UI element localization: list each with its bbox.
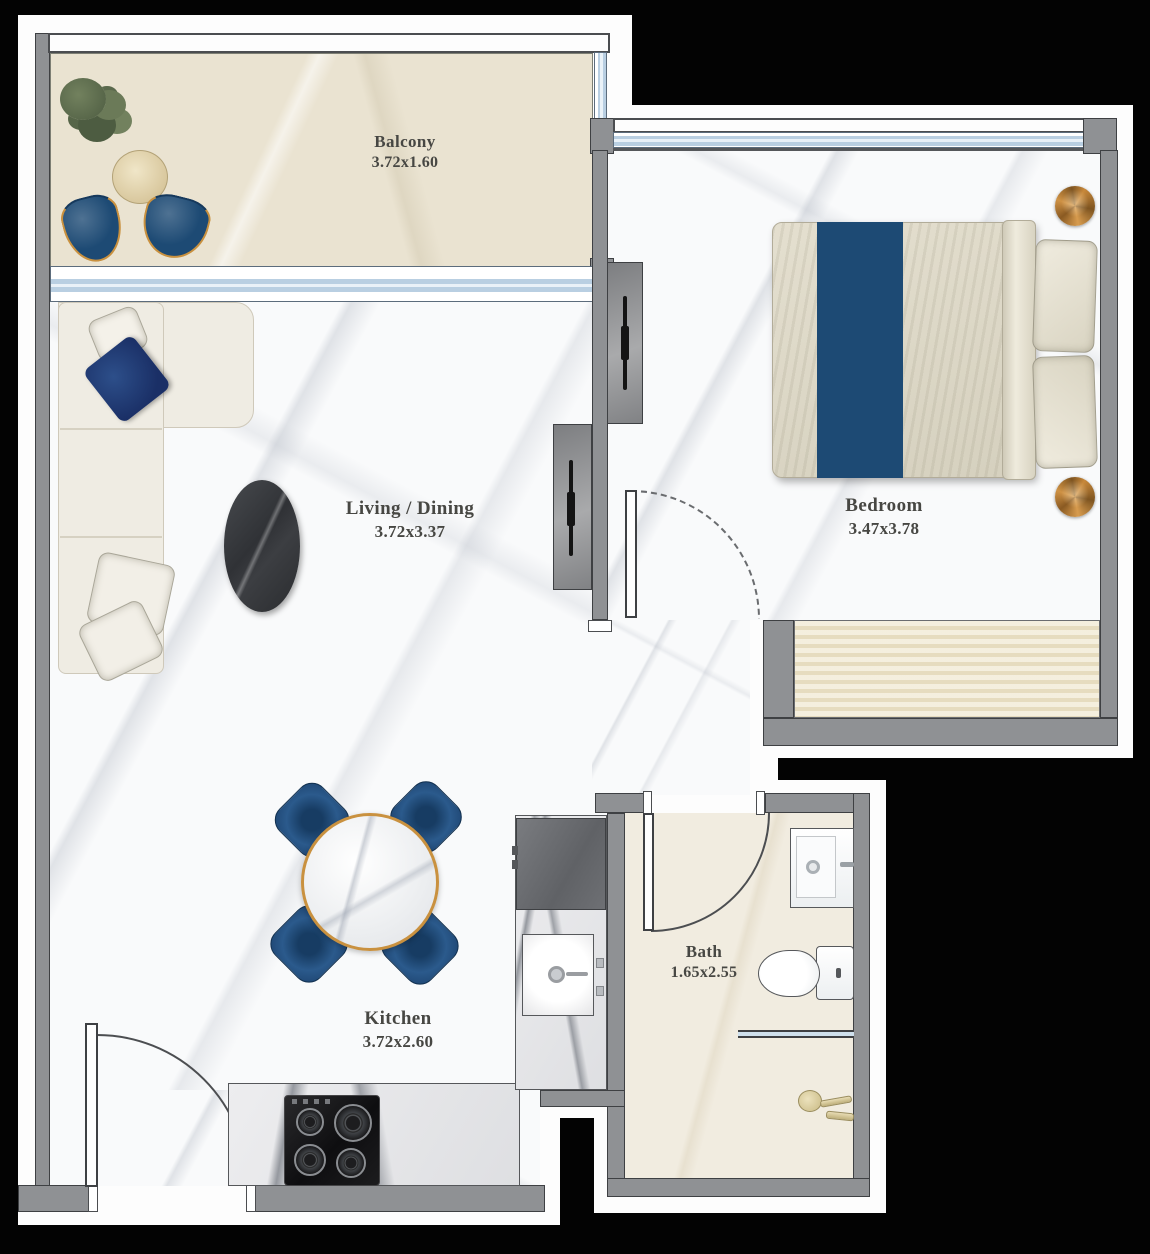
bed-runner	[817, 222, 903, 478]
room-dimensions: 1.65x2.55	[671, 963, 738, 983]
left-exterior-wall	[35, 33, 50, 1212]
bedroom-right-wall	[1100, 150, 1118, 718]
room-name: Bath	[671, 941, 738, 963]
burner	[296, 1108, 324, 1136]
bedroom-window-sill	[613, 148, 1085, 151]
fridge	[516, 818, 606, 910]
shower-divider	[738, 1030, 854, 1038]
wardrobe-unit	[794, 620, 1100, 718]
sliding-door-handle	[621, 326, 629, 360]
bath-top-wall-left	[595, 793, 645, 813]
bedroom-window	[613, 132, 1085, 148]
bed-pillow	[1032, 355, 1098, 469]
floor-plan: Balcony 3.72x1.60 Living / Dining 3.72x3…	[0, 0, 1150, 1254]
sofa-seam	[60, 536, 162, 538]
room-dimensions: 3.72x2.60	[363, 1031, 434, 1053]
door-jamb	[756, 791, 765, 815]
room-name: Living / Dining	[346, 497, 475, 521]
faucet-knob	[596, 958, 604, 968]
coffee-table	[224, 480, 300, 612]
toilet-button	[836, 968, 841, 978]
partition-wall	[592, 150, 608, 620]
sliding-door-handle	[567, 492, 575, 526]
toilet-bowl	[758, 950, 820, 997]
corridor-floor	[592, 620, 750, 795]
window-corner-post	[1083, 118, 1117, 154]
bath-label: Bath 1.65x2.55	[671, 941, 738, 983]
bath-door-leaf	[643, 813, 654, 931]
toilet-tank	[816, 946, 854, 1000]
bath-left-wall	[607, 813, 625, 1197]
room-name: Kitchen	[363, 1007, 434, 1031]
potted-plant	[60, 78, 106, 120]
sofa-seam	[60, 428, 162, 430]
bath-bottom-wall	[607, 1178, 870, 1197]
window-corner-post	[590, 118, 614, 154]
fridge-handle	[512, 846, 518, 855]
bed-pillow	[1032, 239, 1098, 353]
bed	[772, 222, 1034, 478]
faucet-knob	[596, 986, 604, 996]
door-jamb	[246, 1185, 256, 1212]
cooktop-knobs	[292, 1099, 336, 1104]
balcony-sliding-window	[50, 266, 594, 302]
burner	[294, 1144, 326, 1176]
entrance-door-leaf	[85, 1023, 98, 1187]
room-name: Bedroom	[845, 494, 922, 518]
bedside-table	[1055, 186, 1095, 226]
door-jamb	[643, 791, 652, 815]
bedroom-label: Bedroom 3.47x3.78	[845, 494, 922, 540]
room-dimensions: 3.47x3.78	[845, 518, 922, 540]
burner	[336, 1148, 366, 1178]
bed-sheet-fold	[1002, 220, 1036, 480]
bedroom-bottom-wall	[763, 718, 1118, 746]
bedroom-window-frame	[613, 118, 1085, 133]
bedroom-door-leaf	[625, 490, 637, 618]
burner	[334, 1104, 372, 1142]
bottom-wall-right	[248, 1185, 545, 1212]
bedside-table	[1055, 477, 1095, 517]
living-dining-label: Living / Dining 3.72x3.37	[346, 497, 475, 543]
room-dimensions: 3.72x1.60	[372, 153, 439, 173]
wardrobe-side-wall	[763, 620, 794, 718]
bath-faucet	[840, 862, 854, 867]
bath-right-wall	[853, 793, 870, 1197]
balcony-label: Balcony 3.72x1.60	[372, 131, 439, 173]
kitchen-label: Kitchen 3.72x2.60	[363, 1007, 434, 1053]
bath-sink-drain	[806, 860, 820, 874]
kitchen-stub-wall	[540, 1090, 625, 1107]
fridge-handle	[512, 860, 518, 869]
sink-drain	[548, 966, 565, 983]
dining-table	[301, 813, 439, 951]
room-name: Balcony	[372, 131, 439, 153]
room-dimensions: 3.72x3.37	[346, 521, 475, 543]
bottom-wall-left	[18, 1185, 96, 1212]
door-jamb	[88, 1185, 98, 1212]
balcony-parapet	[48, 33, 610, 53]
door-jamb	[588, 620, 612, 632]
kitchen-faucet	[566, 972, 588, 976]
shower-fixture-head	[798, 1090, 822, 1112]
